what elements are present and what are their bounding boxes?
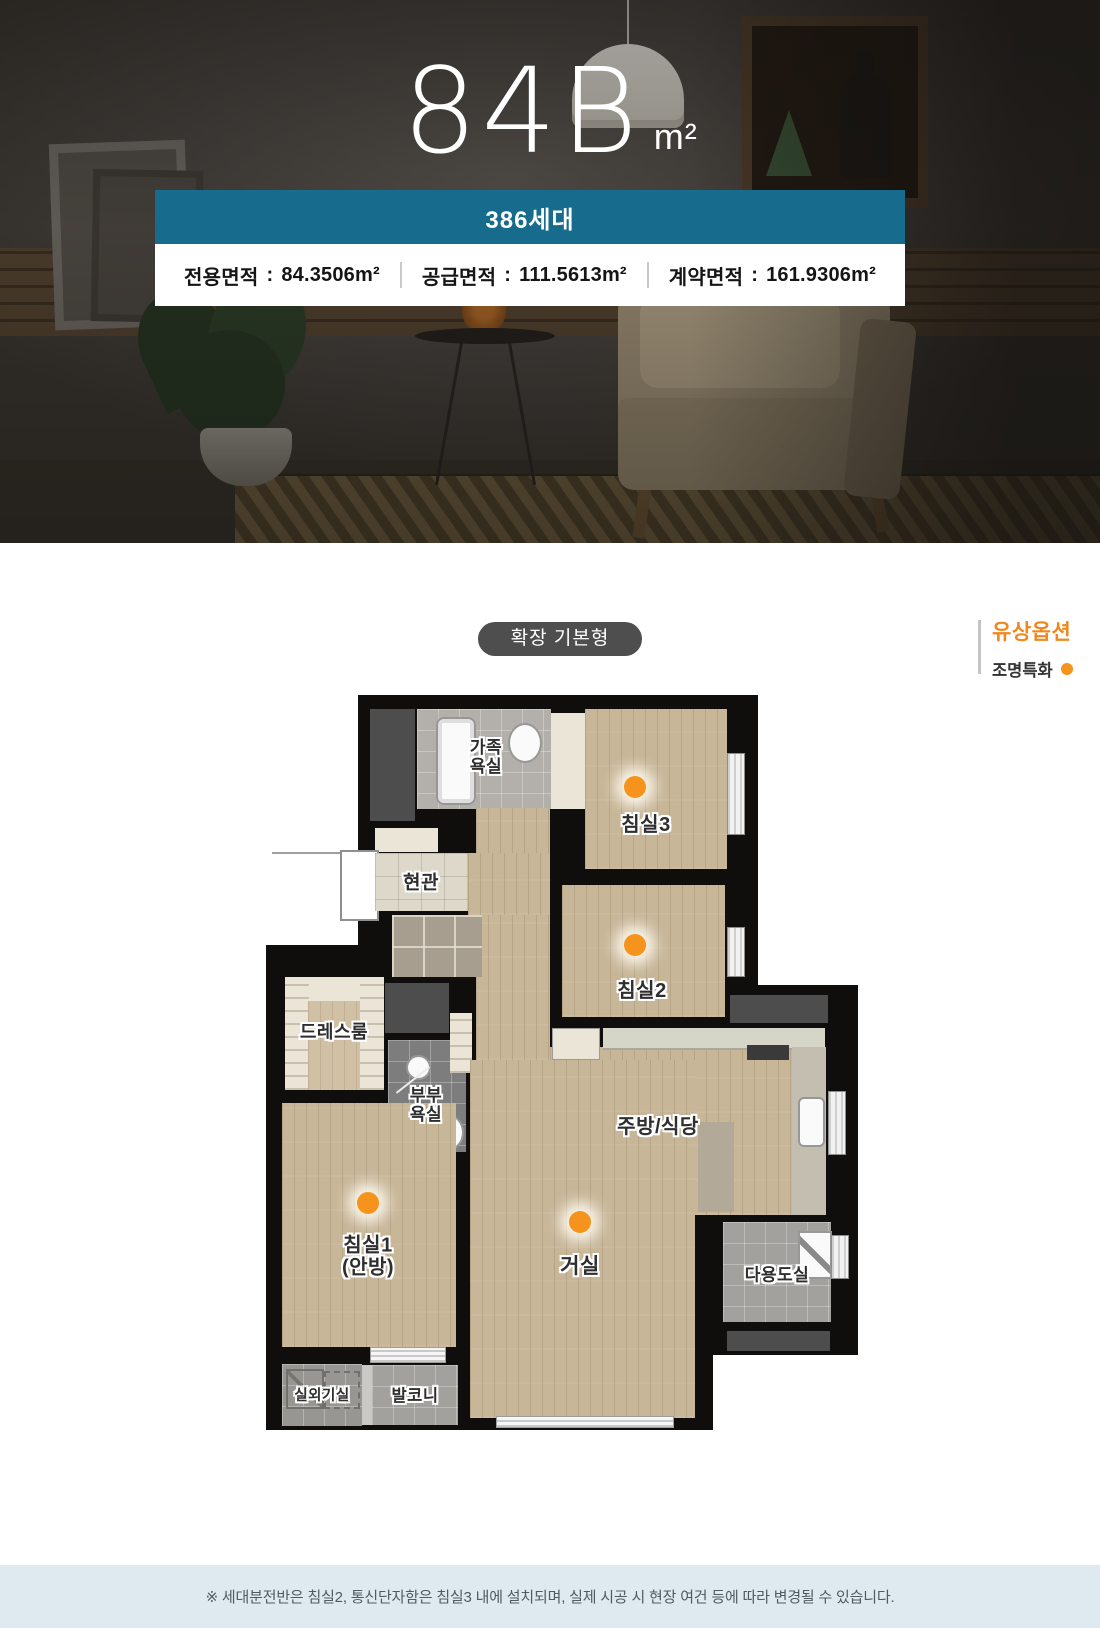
window-utility [831,1235,849,1279]
area-info-bar: 전용면적:84.3506m² 공급면적:111.5613m² 계약면적:161.… [155,244,905,306]
orange-dot-icon [1061,663,1073,675]
households-badge: 386세대 [155,190,905,244]
window-bedroom2 [727,927,745,977]
room-label-bedroom1: 침실1 (안방) [342,1235,394,1280]
unit-title: 84B m² [0,52,1100,170]
room-label-family-bath: 가족 욕실 [470,738,502,776]
toilet [508,723,542,763]
kitchen-island [698,1122,734,1212]
divider [400,262,402,288]
paid-option-item: 조명특화 [992,657,1098,681]
paid-option-label: 조명특화 [992,657,1053,681]
area-value: 161.9306m² [766,264,876,287]
room-label-bedroom3: 침실3 [621,814,670,836]
light-dot-bedroom1 [357,1192,379,1214]
room-label-kitchen: 주방/식당 [617,1116,699,1138]
room-label-bedroom2: 침실2 [617,980,666,1002]
area-label: 전용면적 [184,261,258,290]
area-item-supply: 공급면적:111.5613m² [422,261,627,290]
closet-bottom-right [727,1331,830,1351]
paid-option-title: 유상옵션 [992,616,1098,646]
room-floor-living [470,1060,695,1418]
area-label: 계약면적 [669,261,743,290]
entry-line [272,852,340,854]
room-label-balcony: 발코니 [391,1387,438,1405]
room-label-utility: 다용도실 [745,1265,810,1284]
page: 84B m² 386세대 전용면적:84.3506m² 공급면적:111.561… [0,0,1100,1628]
area-colon: : [504,264,511,287]
room-floor-bedroom1 [282,1103,456,1347]
area-label: 공급면적 [422,261,496,290]
window-bedroom1-balcony [370,1347,446,1363]
room-label-dressroom: 드레스룸 [300,1022,368,1042]
footer-note: ※ 세대분전반은 침실2, 통신단자함은 침실3 내에 설치되며, 실제 시공 … [206,1586,895,1607]
dressroom-center-floor [308,1001,360,1090]
entry-alcove [340,850,379,921]
shoe-cabinet [375,828,438,852]
area-item-exclusive: 전용면적:84.3506m² [184,261,380,290]
hall-floor [468,853,550,915]
linen-cabinet [450,1013,472,1073]
light-dot-living [569,1211,591,1233]
window-bench [552,1028,600,1060]
entry-tile-floor [392,915,482,977]
legend-bar [978,620,981,674]
area-value: 111.5613m² [519,264,627,287]
room-label-ac-room: 실외기실 [294,1388,349,1404]
window-kitchen [828,1091,846,1155]
room-label-master-bath: 부부 욕실 [410,1086,442,1124]
unit-code: 84B [402,52,641,170]
closet-kitchen-top [730,995,828,1023]
unit-suffix: m² [654,116,698,158]
room-label-living: 거실 [560,1255,600,1279]
room-label-entrance: 현관 [403,872,439,893]
stove [747,1045,789,1060]
divider [647,262,649,288]
light-dot-bedroom3 [624,776,646,798]
footer-note-bar: ※ 세대분전반은 침실2, 통신단자함은 침실3 내에 설치되며, 실제 시공 … [0,1565,1100,1628]
area-colon: : [266,264,273,287]
plan-type-pill[interactable]: 확장 기본형 [478,622,642,656]
light-dot-bedroom2 [624,934,646,956]
area-item-contract: 계약면적:161.9306m² [669,261,876,290]
closet-mid [385,983,449,1033]
balcony-divider [362,1365,372,1425]
area-value: 84.3506m² [281,264,380,287]
hero-photo: 84B m² 386세대 전용면적:84.3506m² 공급면적:111.561… [0,0,1100,543]
area-colon: : [751,264,758,287]
kitchen-sink [798,1097,825,1147]
wardrobe-strip [551,713,585,809]
corridor-floor [476,808,550,1060]
window-bedroom3 [727,753,745,835]
room-floor-bedroom3 [585,709,727,869]
paid-options-legend: 유상옵션 조명특화 [978,616,1098,681]
window-living-bottom [496,1416,674,1428]
floorplan-image: 가족 욕실 침실3 현관 침실2 드레스룸 부부 욕실 주방/식당 침실1 (안… [258,695,850,1430]
closet-top-left [370,709,415,821]
